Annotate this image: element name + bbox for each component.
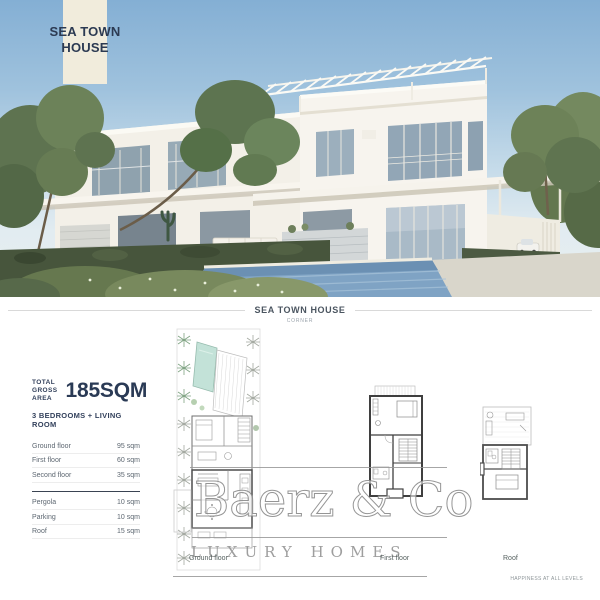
area-row: Second floor 35 sqm xyxy=(32,468,140,483)
watermark-rule-bottom xyxy=(173,576,427,577)
total-gross-area-value: 185SQM xyxy=(65,379,147,403)
brochure-page: SEA TOWN HOUSE SEA TOWN HOUSE CORNER TOT… xyxy=(0,0,600,600)
area-table: Ground floor 95 sqm First floor 60 sqm S… xyxy=(32,439,140,539)
caption-title: SEA TOWN HOUSE xyxy=(255,305,346,315)
area-row: First floor 60 sqm xyxy=(32,454,140,469)
area-summary: TOTAL GROSS AREA 185SQM 3 BEDROOMS + LIV… xyxy=(32,379,142,539)
area-row: Parking 10 sqm xyxy=(32,510,140,525)
caption-subtitle: CORNER xyxy=(0,318,600,324)
project-badge-title: SEA TOWN HOUSE xyxy=(50,24,121,57)
caption-rule-left xyxy=(8,310,245,311)
table-divider xyxy=(32,491,140,492)
project-badge: SEA TOWN HOUSE xyxy=(63,0,107,84)
plan-label-first: First floor xyxy=(380,555,409,562)
area-row: Roof 15 sqm xyxy=(32,525,140,540)
plan-label-ground: Ground floor xyxy=(189,555,228,562)
area-row: Ground floor 95 sqm xyxy=(32,439,140,454)
total-gross-area-label: TOTAL GROSS AREA xyxy=(32,379,57,403)
roof-plan xyxy=(480,405,536,510)
plan-label-roof: Roof xyxy=(503,555,518,562)
configuration-label: 3 BEDROOMS + LIVING ROOM xyxy=(32,411,142,429)
first-floor-plan xyxy=(365,385,430,505)
caption: SEA TOWN HOUSE CORNER xyxy=(0,297,600,324)
ground-floor-plan xyxy=(172,328,265,572)
slogan: HAPPINESS AT ALL LEVELS xyxy=(510,576,583,582)
area-row: Pergola 10 sqm xyxy=(32,496,140,511)
caption-rule-right xyxy=(355,310,592,311)
